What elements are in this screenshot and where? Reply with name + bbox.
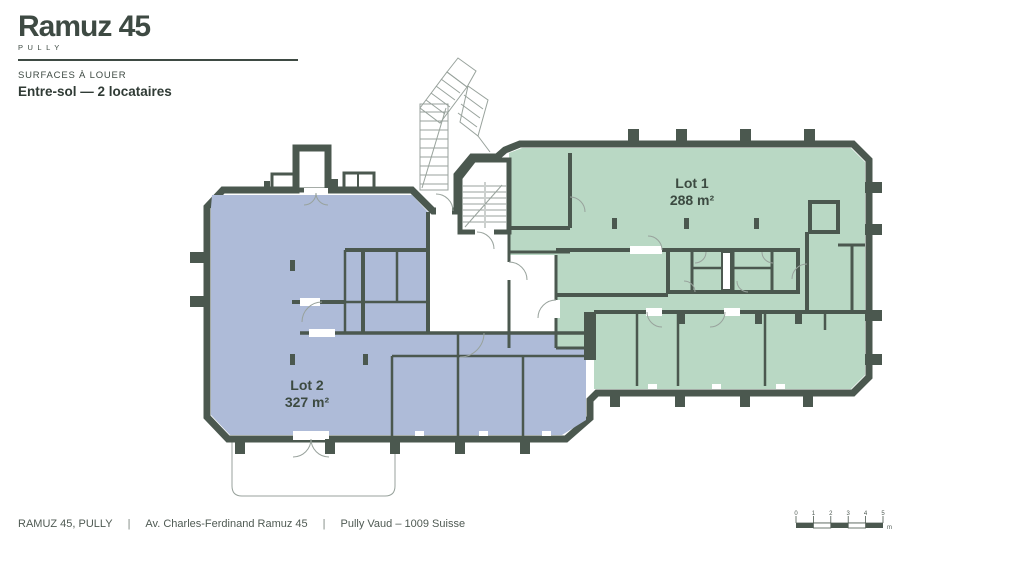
footer-separator: | xyxy=(128,518,131,530)
scale-tick-3: 3 xyxy=(847,511,851,517)
exterior-stairs xyxy=(420,58,490,190)
roof-shaft xyxy=(264,148,374,190)
scale-tick-2: 2 xyxy=(829,511,833,517)
scale-tick-1: 1 xyxy=(812,511,816,517)
scale-tick-0: 0 xyxy=(794,511,798,517)
scale-unit: m xyxy=(887,525,892,531)
footer-item-address: Av. Charles-Ferdinand Ramuz 45 xyxy=(145,518,307,530)
scale-bar: 0 1 2 3 4 5 m xyxy=(793,510,898,534)
footer-separator: | xyxy=(323,518,326,530)
lot2-name: Lot 2 xyxy=(290,377,324,393)
footer-item-project: RAMUZ 45, PULLY xyxy=(18,518,113,530)
scale-tick-4: 4 xyxy=(864,511,868,517)
floor-plan: Lot 1 288 m² Lot 2 327 m² xyxy=(0,0,1024,576)
stair-tower xyxy=(460,160,509,232)
page: Ramuz 45 PULLY SURFACES À LOUER Entre-so… xyxy=(0,0,1024,576)
lot1-name: Lot 1 xyxy=(675,175,709,191)
lot1-area: 288 m² xyxy=(670,192,715,208)
lot1-label: Lot 1 288 m² xyxy=(670,175,715,208)
footer: RAMUZ 45, PULLY | Av. Charles-Ferdinand … xyxy=(18,518,465,530)
lot2-label: Lot 2 327 m² xyxy=(285,377,330,410)
lot2-area: 327 m² xyxy=(285,394,330,410)
scale-tick-5: 5 xyxy=(881,511,885,517)
footer-item-city: Pully Vaud – 1009 Suisse xyxy=(341,518,466,530)
